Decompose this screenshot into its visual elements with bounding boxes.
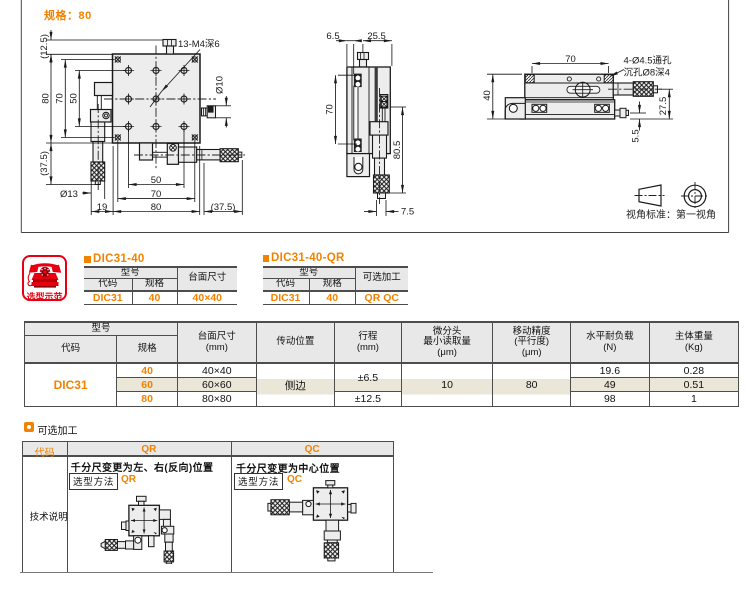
- svg-text:80: 80: [41, 93, 52, 104]
- svg-text:70: 70: [325, 104, 336, 115]
- svg-text:(12.5): (12.5): [39, 34, 50, 59]
- svg-text:19: 19: [97, 202, 108, 213]
- svg-text:(37.5): (37.5): [211, 202, 236, 213]
- svg-text:25.5: 25.5: [367, 31, 386, 42]
- svg-text:(37.5): (37.5): [39, 151, 50, 176]
- svg-text:70: 70: [565, 54, 576, 65]
- svg-text:5.5: 5.5: [631, 129, 642, 142]
- svg-text:Ø13: Ø13: [60, 189, 78, 200]
- svg-text:沉孔Ø8深4: 沉孔Ø8深4: [624, 68, 670, 79]
- svg-text:4-Ø4.5通孔: 4-Ø4.5通孔: [624, 56, 673, 67]
- svg-text:13-M4深6: 13-M4深6: [178, 39, 220, 50]
- svg-text:50: 50: [151, 175, 162, 186]
- svg-text:6.5: 6.5: [326, 31, 339, 42]
- svg-text:50: 50: [69, 93, 80, 104]
- svg-text:70: 70: [151, 189, 162, 200]
- svg-text:70: 70: [55, 93, 66, 104]
- svg-text:80: 80: [151, 202, 162, 213]
- svg-text:视角标准：第一视角: 视角标准：第一视角: [626, 208, 716, 221]
- svg-text:Ø10: Ø10: [215, 76, 226, 94]
- svg-text:27.5: 27.5: [658, 97, 669, 116]
- svg-text:40: 40: [482, 90, 493, 101]
- svg-text:80.5: 80.5: [392, 141, 403, 160]
- svg-text:7.5: 7.5: [401, 207, 414, 218]
